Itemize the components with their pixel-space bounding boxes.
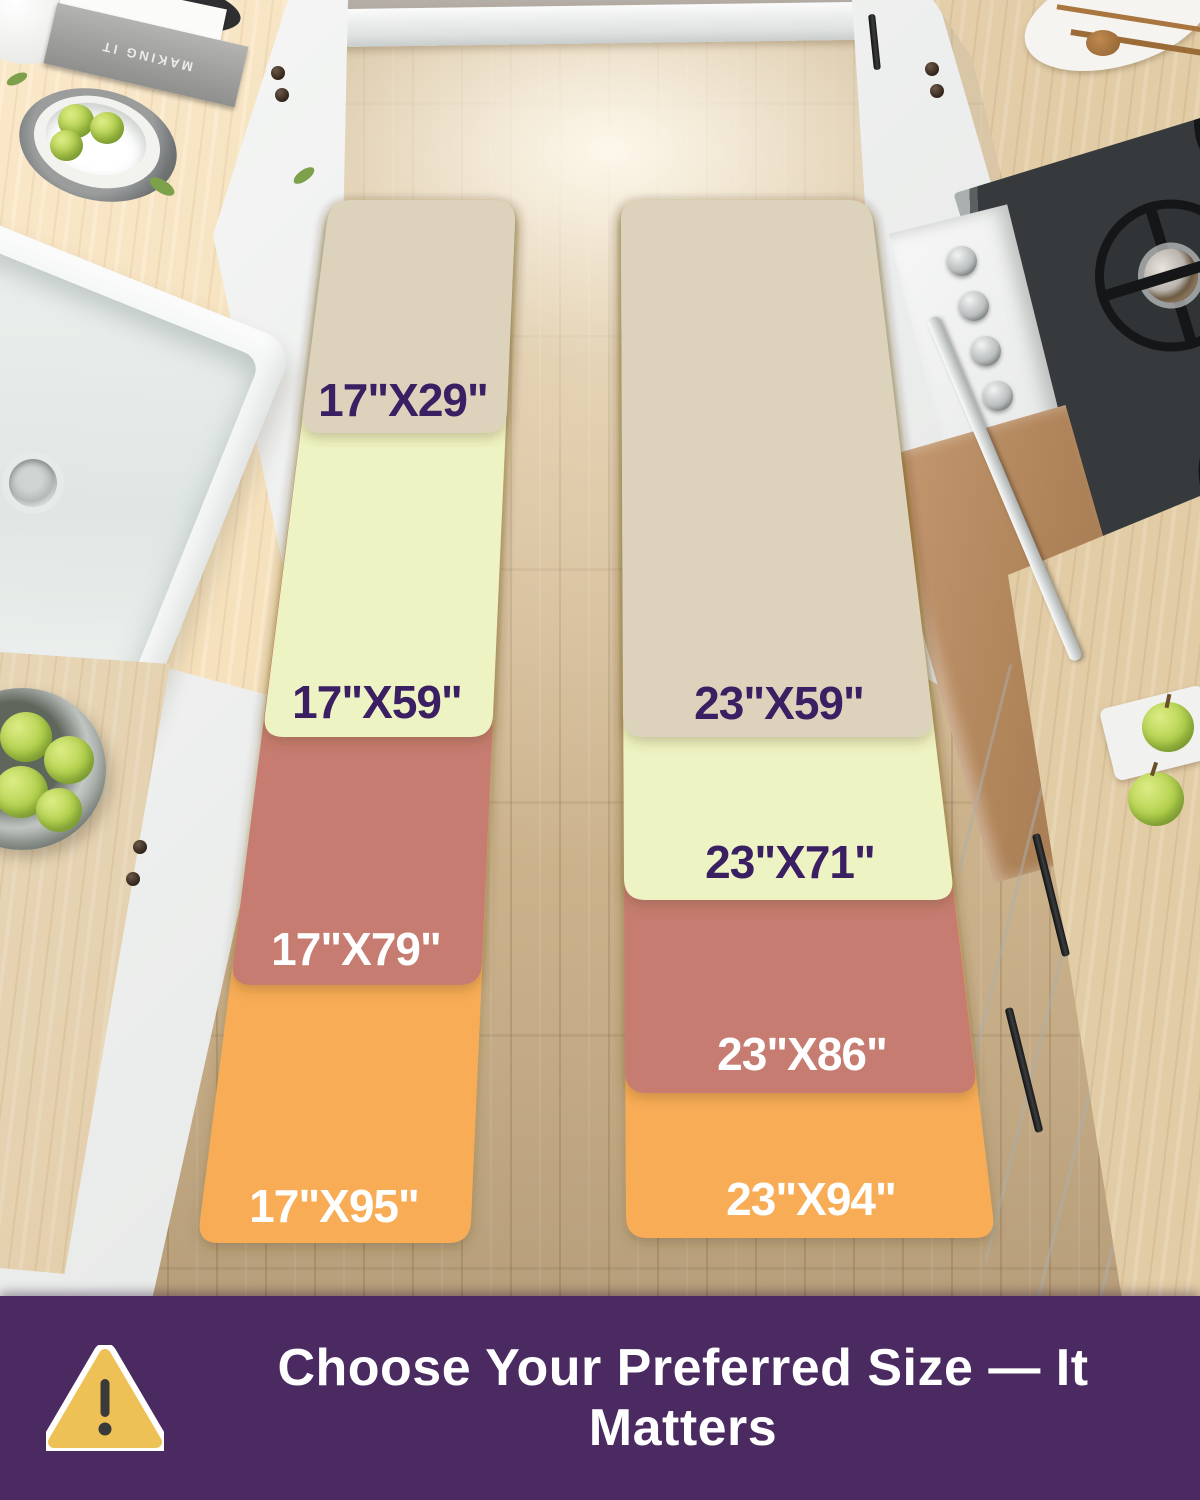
- size-label-17x79: 17"X79": [271, 922, 441, 976]
- size-label-23x86: 23"X86": [717, 1027, 887, 1081]
- banner-title: Choose Your Preferred Size — It Matters: [206, 1338, 1160, 1458]
- size-label-17x59: 17"X59": [292, 675, 462, 729]
- size-label-23x94: 23"X94": [726, 1172, 896, 1226]
- size-label-23x59: 23"X59": [694, 676, 864, 730]
- size-label-17x95: 17"X95": [249, 1179, 419, 1233]
- runner-23-segment-59: [621, 200, 932, 737]
- warning-icon-mark: [101, 1379, 110, 1417]
- notice-banner: Choose Your Preferred Size — It Matters: [0, 1296, 1200, 1500]
- size-chart-overlay: [0, 0, 1200, 1500]
- size-label-23x71: 23"X71": [705, 835, 875, 889]
- warning-icon: [46, 1345, 164, 1451]
- warning-icon-dot: [99, 1423, 112, 1436]
- size-label-17x29: 17"X29": [318, 373, 488, 427]
- kitchen-scene: MAKING IT: [0, 0, 1200, 1500]
